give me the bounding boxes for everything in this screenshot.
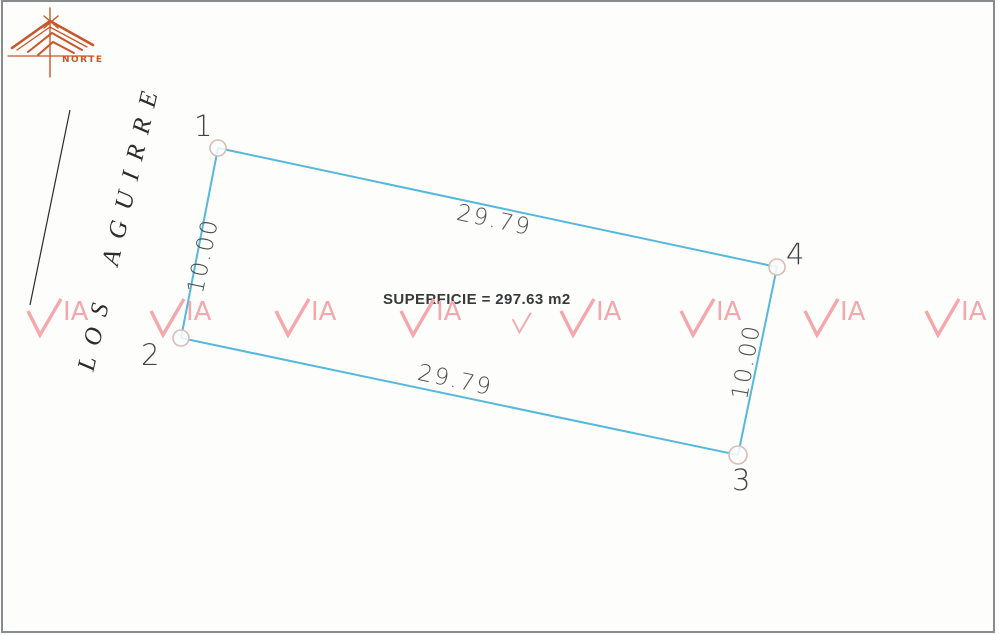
vertex-label-2: 2 bbox=[141, 341, 159, 370]
vertex-label-3: 3 bbox=[732, 466, 750, 495]
diagonal-line bbox=[30, 110, 70, 305]
norte-label: NORTE bbox=[62, 55, 104, 65]
vertex-marker-1 bbox=[210, 140, 226, 156]
plot-plan-page: NORTE LOS AGUIRRE 1 2 3 4 29.79 29.79 10… bbox=[0, 0, 999, 635]
vertex-marker-4 bbox=[769, 259, 785, 275]
north-symbol bbox=[8, 8, 93, 77]
vertex-marker-2 bbox=[173, 330, 189, 346]
vertex-label-1: 1 bbox=[194, 112, 212, 141]
compass-chevron-inner bbox=[38, 42, 74, 55]
area-label: SUPERFICIE = 297.63 m2 bbox=[383, 291, 571, 308]
vertex-label-4: 4 bbox=[786, 240, 804, 269]
vertex-marker-3 bbox=[729, 446, 747, 464]
